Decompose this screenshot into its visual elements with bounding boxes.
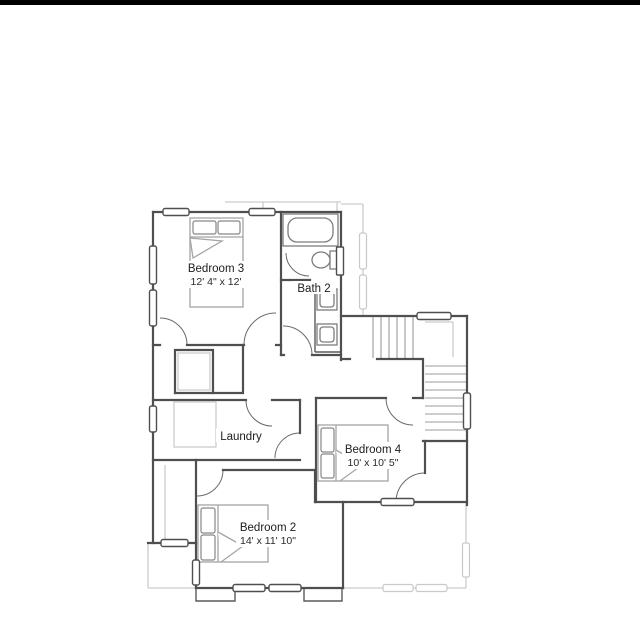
closet-shelf — [178, 353, 210, 390]
bedroom4-dims: 10' x 10' 5" — [348, 457, 399, 469]
label-bedroom2: Bedroom 2 14' x 11' 10" — [236, 520, 301, 547]
laundry-counter — [174, 402, 216, 447]
bedroom3-dims: 12' 4" x 12' — [191, 276, 242, 288]
bedroom2-dims: 14' x 11' 10" — [240, 535, 296, 547]
bedroom2-door-arc — [197, 470, 223, 496]
hall-door-arc — [275, 433, 300, 458]
label-laundry: Laundry — [216, 428, 266, 443]
label-bedroom3: Bedroom 3 12' 4" x 12' — [186, 261, 246, 288]
bedroom4-door-arc — [386, 398, 413, 425]
floor-plan-page: Bedroom 3 12' 4" x 12' Bath 2 Laundry Be… — [0, 0, 640, 640]
bath-niche — [337, 247, 344, 275]
bay-bumpout-right — [304, 589, 342, 601]
floor-plan-drawing: Bedroom 3 12' 4" x 12' Bath 2 Laundry Be… — [0, 0, 640, 640]
bedroom4-name: Bedroom 4 — [345, 444, 402, 456]
bay-bumpout-left — [196, 589, 235, 601]
bedroom3-closet-door-arc — [160, 318, 187, 345]
toilet — [312, 251, 338, 269]
bedroom3-name: Bedroom 3 — [188, 263, 244, 275]
label-bath2: Bath 2 — [292, 281, 336, 295]
bath2-door-arc — [283, 326, 312, 355]
bathtub — [283, 214, 338, 246]
laundry-door-arc — [246, 400, 272, 426]
laundry-name: Laundry — [220, 431, 262, 443]
bath2-wc-door-arc — [286, 253, 309, 276]
staircase — [373, 317, 466, 430]
bedroom4-closet-door-arc — [396, 473, 425, 502]
bath2-name: Bath 2 — [297, 283, 330, 295]
bedroom3-door-arc — [244, 313, 276, 345]
bedroom2-name: Bedroom 2 — [240, 522, 296, 534]
label-bedroom4: Bedroom 4 10' x 10' 5" — [342, 442, 404, 469]
